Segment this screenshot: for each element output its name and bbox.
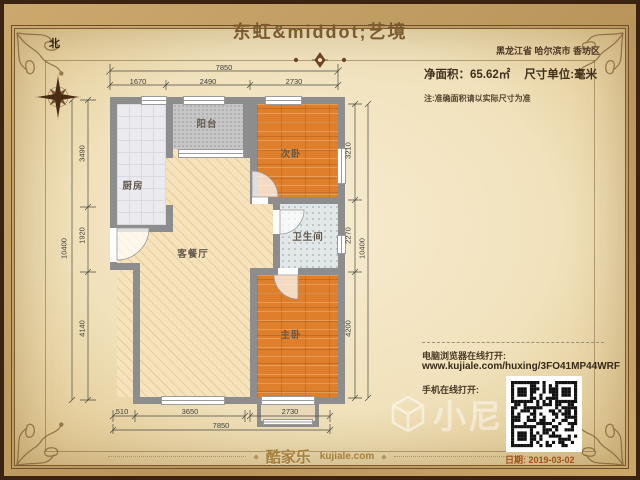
room-label-balcony: 阳台 bbox=[183, 116, 231, 130]
room-label-bathroom: 卫生间 bbox=[281, 229, 335, 243]
dim-left-seg2: 1920 bbox=[78, 216, 87, 256]
dim-bottom-seg1: 510 bbox=[104, 407, 140, 416]
room-label-living: 客餐厅 bbox=[165, 246, 221, 260]
diamond-icon: ◆ bbox=[253, 453, 258, 461]
wall bbox=[166, 104, 173, 158]
dim-top-total: 7850 bbox=[204, 63, 244, 72]
window bbox=[161, 396, 225, 405]
window bbox=[265, 96, 302, 105]
wall bbox=[250, 268, 257, 404]
balcony-slider-window bbox=[178, 149, 244, 158]
bathroom-door-opening bbox=[273, 210, 280, 234]
dim-left-seg3: 4140 bbox=[78, 309, 87, 349]
dim-bottom-seg3: 2730 bbox=[270, 407, 310, 416]
window bbox=[183, 96, 225, 105]
area-info: 净面积：65.62㎡尺寸单位:毫米 bbox=[424, 66, 597, 82]
room-kitchen-floor bbox=[117, 104, 166, 225]
bedroom2-door-opening bbox=[252, 197, 268, 204]
brand-domain: kujiale.com bbox=[320, 451, 374, 462]
room-label-kitchen: 厨房 bbox=[109, 178, 157, 192]
dim-right-seg3: 4200 bbox=[344, 309, 353, 349]
cube-logo-icon bbox=[388, 394, 428, 434]
dim-left-seg1: 3490 bbox=[78, 134, 87, 174]
diamond-icon: ◆ bbox=[381, 453, 386, 461]
wall bbox=[243, 104, 250, 158]
page-title: 东虹&middot;艺境 bbox=[0, 18, 640, 44]
bay-window bbox=[263, 419, 313, 425]
dim-right-seg2: 2270 bbox=[344, 216, 353, 256]
brand-name: 酷家乐 bbox=[266, 446, 311, 467]
wall bbox=[166, 205, 173, 232]
dim-right-seg1: 3210 bbox=[344, 131, 353, 171]
share-url: www.kujiale.com/huxing/3FO41MP44WRF bbox=[422, 361, 620, 372]
unit-text: 尺寸单位:毫米 bbox=[524, 69, 597, 81]
dim-right-total: 10400 bbox=[358, 229, 367, 269]
dim-top-seg2: 2490 bbox=[188, 77, 228, 86]
watermark-text: 小尼 bbox=[433, 390, 503, 438]
qr-code bbox=[506, 376, 582, 452]
wall bbox=[133, 263, 140, 404]
floorplan-page: 东虹&middot;艺境 黑龙江省 哈尔滨市 香坊区 北 净面积：65.62㎡尺… bbox=[0, 0, 640, 480]
window bbox=[141, 96, 167, 105]
net-area-text: 净面积：65.62㎡ bbox=[424, 69, 510, 81]
region-text: 黑龙江省 哈尔滨市 香坊区 bbox=[496, 44, 600, 57]
master-door-opening bbox=[278, 268, 298, 275]
dim-bottom-total: 7850 bbox=[201, 421, 241, 430]
north-label: 北 bbox=[49, 35, 60, 51]
room-label-bedroom2: 次卧 bbox=[267, 146, 315, 160]
dotted-divider bbox=[108, 456, 246, 457]
dim-top-seg1: 1670 bbox=[118, 77, 158, 86]
dim-top-seg3: 2730 bbox=[274, 77, 314, 86]
bay-window bbox=[261, 396, 315, 405]
dashed-separator bbox=[422, 342, 604, 343]
watermark: 小尼 bbox=[388, 388, 503, 440]
date-text: 日期: 2019-03-02 bbox=[505, 453, 575, 466]
room-label-master: 主卧 bbox=[267, 327, 315, 341]
area-note: 注:准确面积请以实际尺寸为准 bbox=[424, 93, 531, 104]
entry-door-opening bbox=[110, 228, 117, 262]
wall bbox=[110, 225, 173, 232]
wall bbox=[250, 104, 257, 204]
dim-left-total: 10400 bbox=[60, 229, 69, 269]
dim-bottom-seg2: 3650 bbox=[170, 407, 210, 416]
